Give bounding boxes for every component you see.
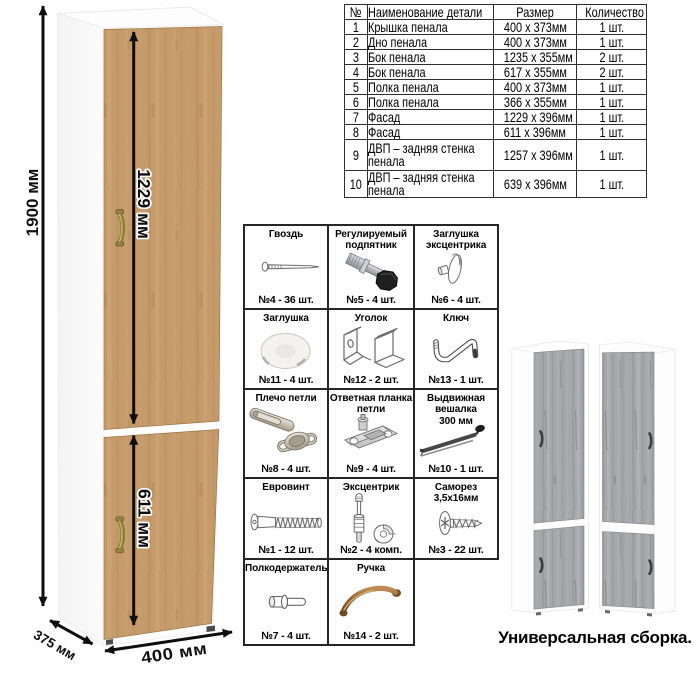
- svg-text:1229 мм: 1229 мм: [134, 169, 154, 239]
- svg-text:611 мм: 611 мм: [135, 489, 155, 548]
- svg-text:1900 мм: 1900 мм: [23, 169, 42, 237]
